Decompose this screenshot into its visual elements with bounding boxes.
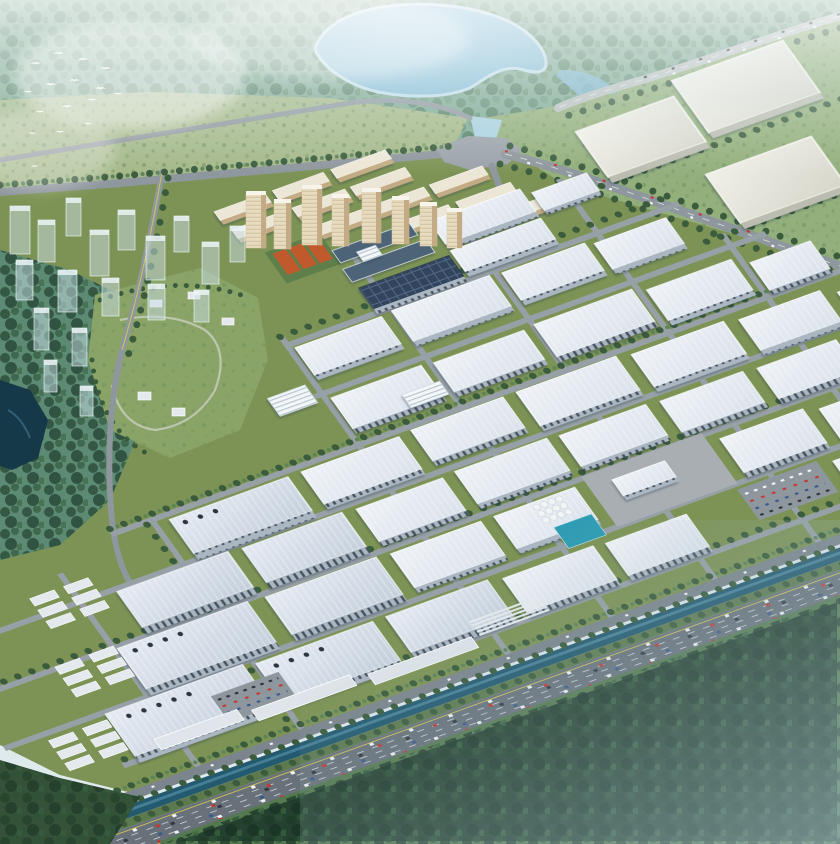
- haze-southeast: [300, 520, 840, 844]
- high-rise-tower: [447, 208, 462, 248]
- ghost-tower: [118, 210, 135, 250]
- high-rise-tower: [420, 202, 437, 246]
- ghost-tower: [10, 206, 30, 254]
- ghost-tower: [194, 290, 209, 322]
- ghost-tower: [148, 284, 165, 320]
- high-rise-tower: [362, 188, 381, 243]
- ghost-tower: [58, 270, 77, 312]
- villa: [172, 408, 185, 416]
- scene-canvas: [0, 0, 840, 844]
- aerial-rendering: [0, 0, 840, 844]
- ghost-tower: [80, 386, 93, 416]
- villa: [138, 392, 151, 400]
- ghost-tower: [102, 278, 119, 316]
- ghost-tower: [72, 328, 87, 366]
- ghost-tower: [230, 226, 245, 262]
- ghost-tower: [90, 230, 109, 276]
- high-rise-tower: [302, 185, 322, 245]
- ghost-tower: [44, 360, 57, 392]
- high-rise-tower: [332, 194, 349, 246]
- ghost-tower: [202, 242, 219, 284]
- ghost-tower: [38, 220, 55, 262]
- high-rise-tower: [392, 196, 409, 244]
- ghost-tower: [16, 260, 33, 300]
- villa: [222, 318, 234, 325]
- ghost-tower: [34, 308, 49, 350]
- ghost-tower: [174, 216, 189, 252]
- ghost-tower: [66, 198, 81, 236]
- high-rise-tower: [246, 191, 266, 248]
- ghost-tower: [146, 236, 165, 280]
- high-rise-tower: [274, 199, 291, 249]
